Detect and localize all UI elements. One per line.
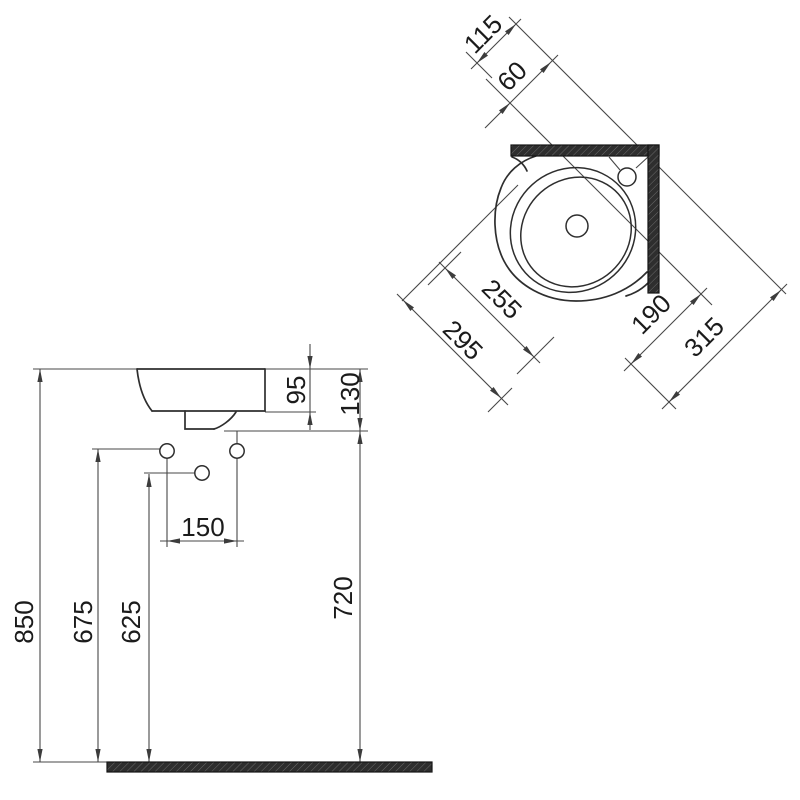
tap-hole-stub-corner	[636, 157, 648, 168]
floor-bar	[107, 762, 432, 772]
arrowhead	[37, 749, 42, 762]
apron-outline	[185, 411, 214, 429]
wall-vertical	[648, 145, 659, 293]
basin-rim-ear-bottomright	[626, 283, 648, 296]
mounting-hole-center	[195, 466, 209, 480]
front-basin-profile	[137, 369, 265, 480]
arrowhead	[37, 369, 42, 382]
arrowhead	[167, 538, 180, 543]
dim-label-720: 720	[328, 576, 358, 619]
arrowhead	[357, 418, 362, 431]
dim-label-295: 295	[437, 314, 489, 366]
extension-line-through-basin-left	[486, 79, 712, 305]
tap-hole-stub-upper	[609, 157, 620, 170]
dim-label-625: 625	[116, 600, 146, 643]
extension-stub-190-315-left	[625, 358, 676, 409]
arrowhead	[357, 431, 362, 444]
mounting-hole-left	[160, 444, 174, 458]
corner-basin-technical-drawing: 115 60 255 295 190 315	[0, 0, 800, 800]
front-dimension-lines	[37, 344, 362, 762]
dim-label-675: 675	[68, 600, 98, 643]
dim-label-95: 95	[281, 376, 311, 405]
arrowhead	[95, 749, 100, 762]
dim-label-130: 130	[335, 372, 365, 415]
dim-label-115: 115	[458, 9, 509, 60]
apron-curve	[214, 412, 236, 429]
tap-hole	[618, 168, 636, 186]
arrowhead	[146, 474, 151, 487]
arrowhead	[357, 749, 362, 762]
dim-label-150: 150	[181, 512, 224, 542]
arrowhead	[95, 449, 100, 462]
front-extension-lines	[33, 369, 368, 762]
extension-stub-255-left	[428, 252, 461, 285]
technical-drawing-page: 115 60 255 295 190 315	[0, 0, 800, 800]
wall-horizontal	[511, 145, 659, 156]
arrowhead	[307, 356, 312, 369]
front-dimension-labels: 850 675 625 95 130 720 150	[9, 372, 365, 643]
arrowhead	[224, 538, 237, 543]
plan-dimension-labels: 115 60 255 295 190 315	[437, 9, 730, 366]
basin-left-curve	[137, 369, 152, 411]
dim-label-850: 850	[9, 600, 39, 643]
dim-label-315: 315	[678, 311, 730, 363]
dim-label-190: 190	[625, 288, 677, 340]
plan-view: 115 60 255 295 190 315	[397, 9, 787, 412]
mounting-hole-right	[230, 444, 244, 458]
arrowhead	[307, 412, 312, 425]
front-view: 850 675 625 95 130 720 150	[9, 344, 432, 772]
drain-hole	[566, 215, 588, 237]
dim-line-315	[662, 284, 787, 409]
arrowhead	[146, 749, 151, 762]
extension-stub-255-right	[517, 337, 554, 374]
